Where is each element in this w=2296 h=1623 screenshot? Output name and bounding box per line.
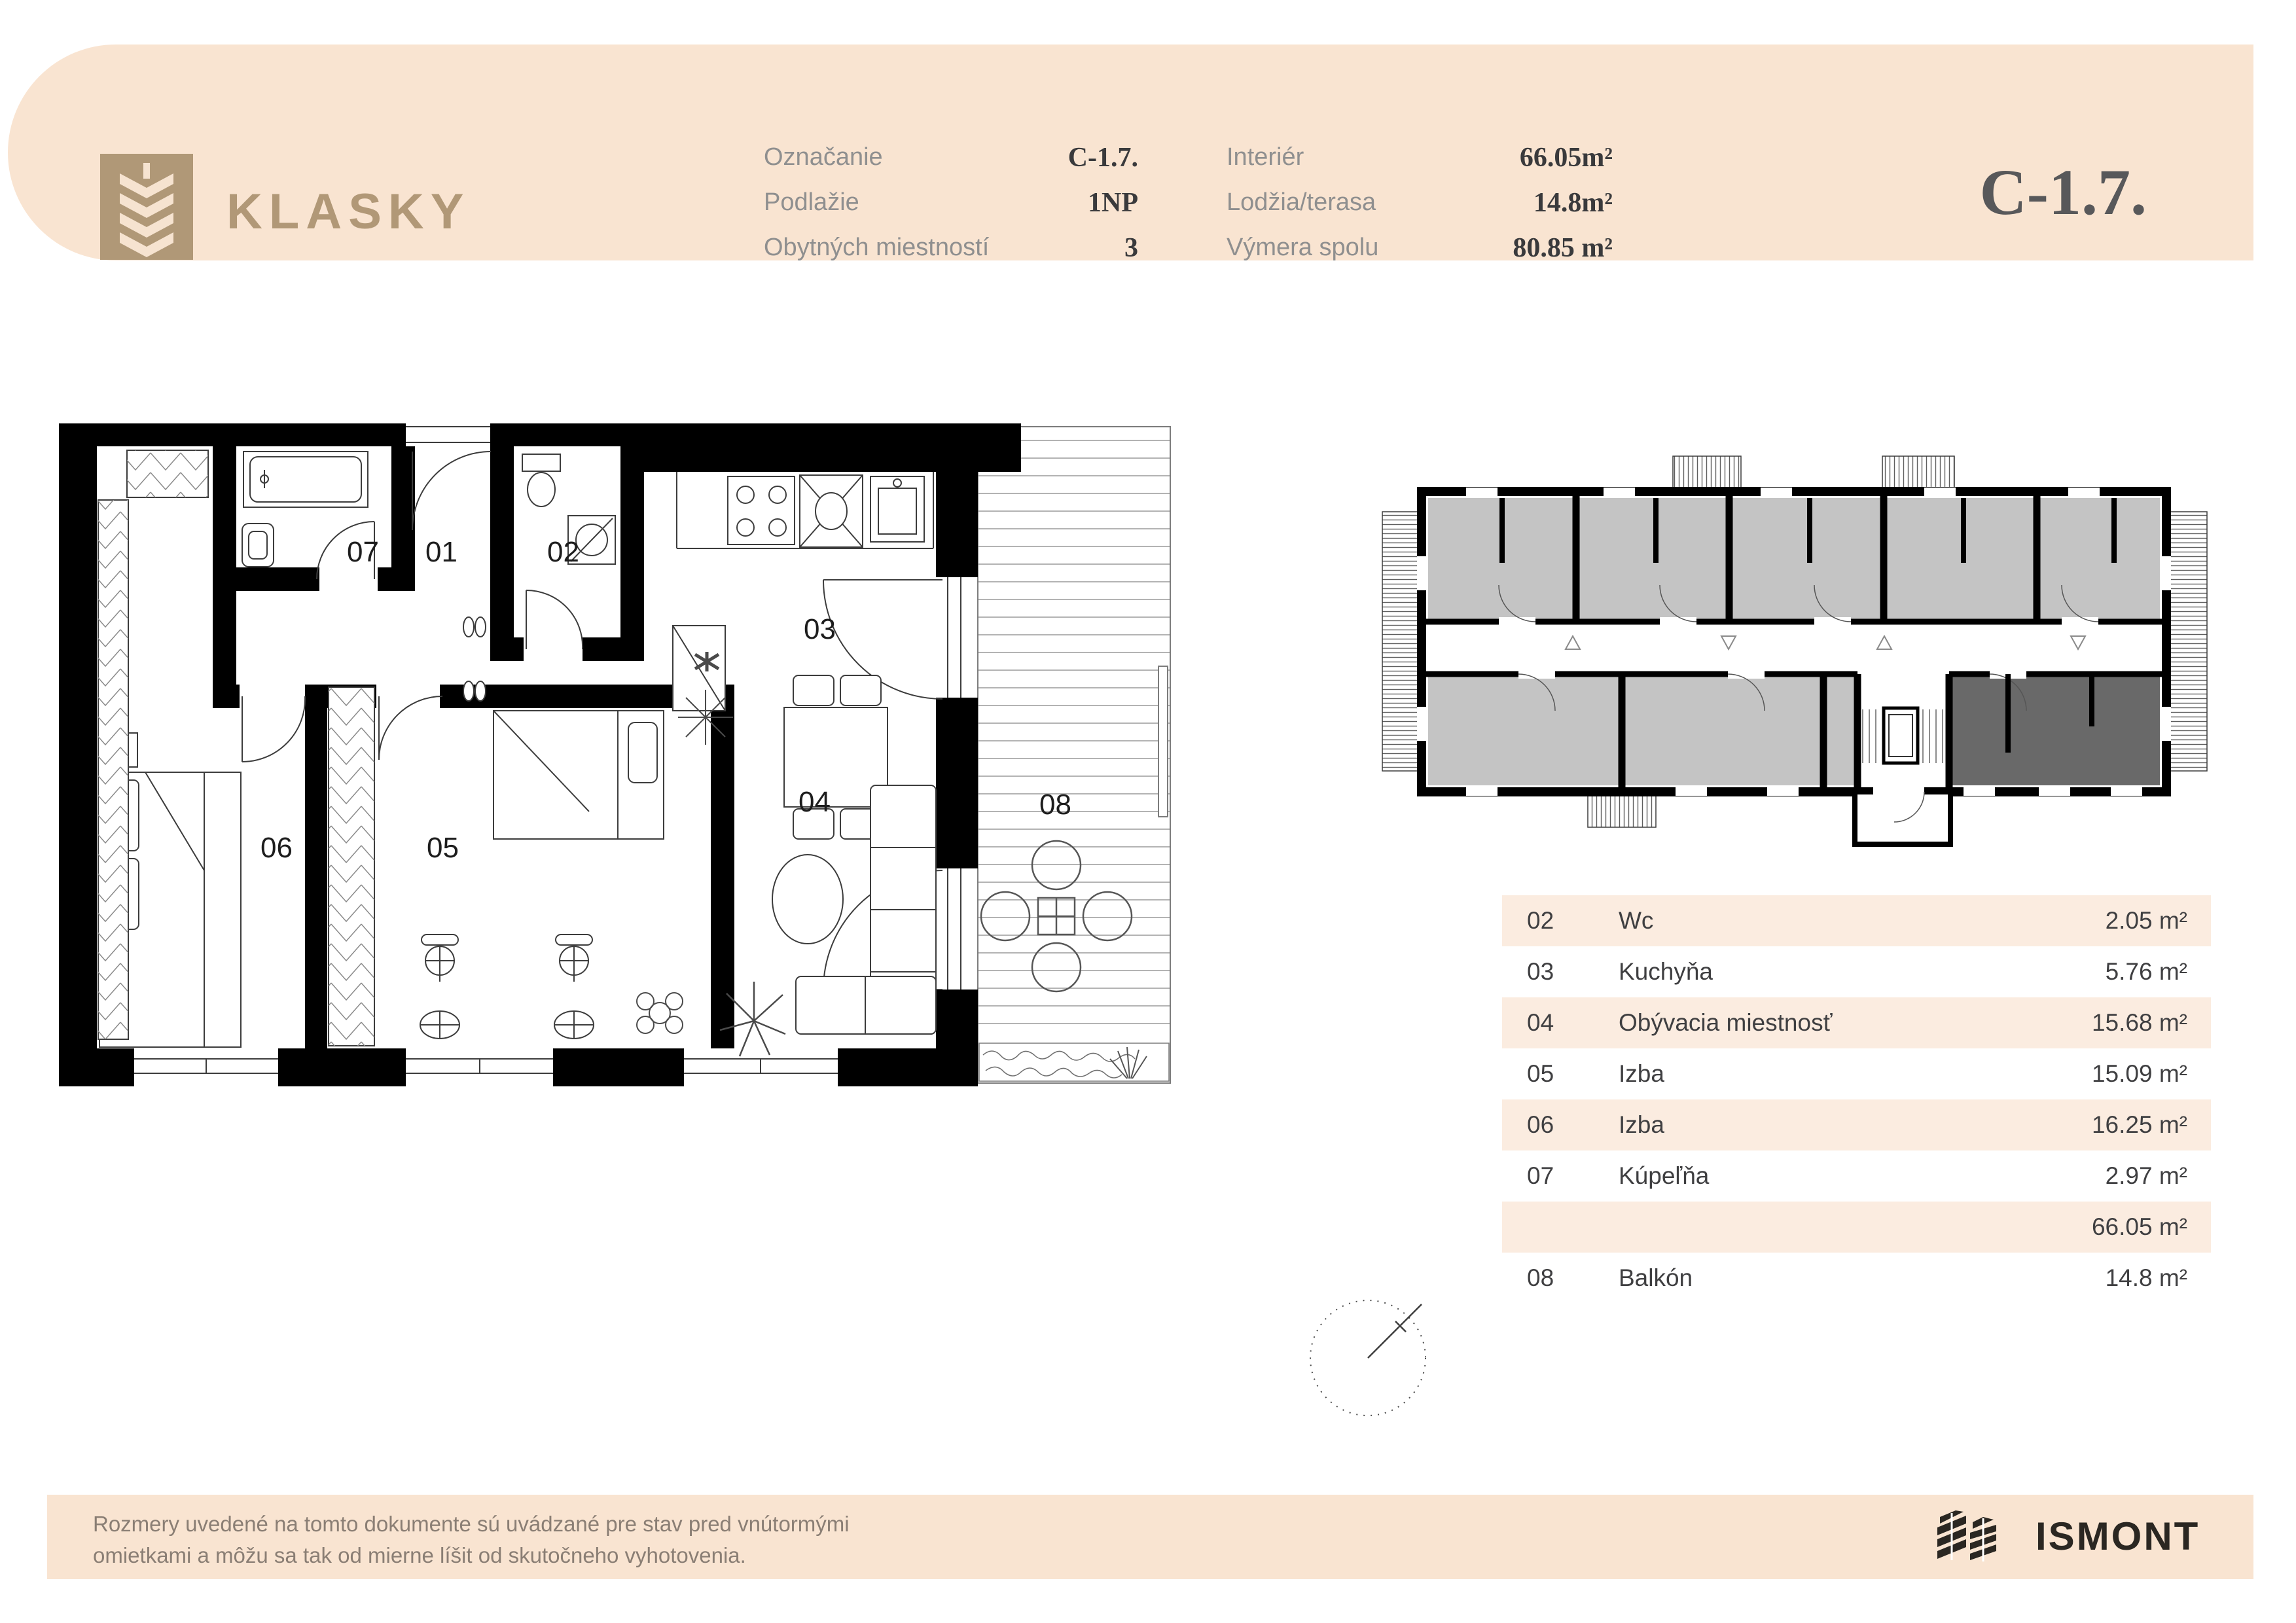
field-value: 14.8m²	[1378, 187, 1613, 219]
field-label: Výmera spolu	[1227, 234, 1378, 262]
apartment-floor-plan: 07 01 02 03 06 05 04 08	[56, 419, 1175, 1090]
header-info-right: Interiér 66.05m² Lodžia/terasa 14.8m² Vý…	[1227, 135, 1613, 270]
room-table-row: 04Obývacia miestnosť15.68 m²	[1502, 997, 2211, 1048]
balcony-deck	[978, 427, 1170, 1083]
room-area: 16.25 m²	[2092, 1111, 2211, 1139]
room-name: Wc	[1619, 907, 2106, 935]
room-table-row: 05Izba15.09 m²	[1502, 1048, 2211, 1099]
field-label: Lodžia/terasa	[1227, 188, 1378, 217]
north-compass	[1299, 1289, 1437, 1427]
field-label: Podlažie	[764, 188, 989, 217]
room-name: Obývacia miestnosť	[1619, 1009, 2092, 1037]
room-table-row: 03Kuchyňa5.76 m²	[1502, 946, 2211, 997]
room-label-03: 03	[804, 613, 836, 645]
room-area: 5.76 m²	[2106, 958, 2211, 986]
room-table-row: 08Balkón14.8 m²	[1502, 1253, 2211, 1304]
field-value: C-1.7.	[989, 142, 1138, 173]
room-number: 05	[1502, 1060, 1619, 1088]
room-area: 15.68 m²	[2092, 1009, 2211, 1037]
floorplan-sheet: KLASKY Označanie C-1.7. Podlažie 1NP Oby…	[0, 0, 2296, 1623]
room-number: 08	[1502, 1264, 1619, 1292]
room-area: 2.05 m²	[2106, 907, 2211, 935]
field-label: Označanie	[764, 143, 989, 171]
room-name: Balkón	[1619, 1264, 2106, 1292]
field-value: 1NP	[989, 187, 1138, 219]
room-label-07: 07	[347, 536, 379, 568]
room-number: 04	[1502, 1009, 1619, 1037]
brand-name: KLASKY	[226, 183, 470, 240]
room-label-05: 05	[427, 832, 459, 864]
room-table-row: 06Izba16.25 m²	[1502, 1099, 2211, 1150]
room-area: 15.09 m²	[2092, 1060, 2211, 1088]
plant-corridor	[678, 690, 733, 745]
ismont-logo: ISMONT	[1936, 1510, 2200, 1561]
footer-disclaimer: Rozmery uvedené na tomto dokumente sú uv…	[93, 1508, 850, 1571]
unit-code-title: C-1.7.	[1979, 154, 2147, 230]
room-area: 66.05 m²	[2092, 1213, 2211, 1241]
klasky-wheat-logo-icon	[100, 154, 193, 260]
room-label-02: 02	[547, 536, 579, 568]
room-name: Kuchyňa	[1619, 958, 2106, 986]
room-name: Kúpeľňa	[1619, 1162, 2106, 1190]
room-area: 2.97 m²	[2106, 1162, 2211, 1190]
room-label-01: 01	[425, 536, 457, 568]
field-value: 3	[989, 232, 1138, 264]
room-table-row: 07Kúpeľňa2.97 m²	[1502, 1150, 2211, 1202]
footer-line-2: omietkami a môžu sa tak od mierne líšit …	[93, 1540, 850, 1571]
plant-05	[637, 993, 683, 1033]
room-label-08: 08	[1039, 789, 1071, 821]
field-label: Obytných miestností	[764, 234, 989, 262]
room-number: 02	[1502, 907, 1619, 935]
room-table-row: 02Wc2.05 m²	[1502, 895, 2211, 946]
field-value: 80.85 m²	[1378, 232, 1613, 264]
ismont-name: ISMONT	[2036, 1514, 2200, 1559]
room-label-06: 06	[260, 832, 293, 864]
room-number: 06	[1502, 1111, 1619, 1139]
building-key-plan	[1378, 419, 2215, 854]
room-name: Izba	[1619, 1060, 2092, 1088]
field-value: 66.05m²	[1378, 142, 1613, 173]
room-table-row: 66.05 m²	[1502, 1202, 2211, 1253]
ismont-building-icon	[1936, 1510, 2022, 1561]
room-name: Izba	[1619, 1111, 2092, 1139]
room-area: 14.8 m²	[2106, 1264, 2211, 1292]
footer-line-1: Rozmery uvedené na tomto dokumente sú uv…	[93, 1508, 850, 1540]
room-number: 03	[1502, 958, 1619, 986]
room-label-04: 04	[798, 786, 831, 818]
room-table: 02Wc2.05 m²03Kuchyňa5.76 m²04Obývacia mi…	[1502, 895, 2211, 1304]
field-label: Interiér	[1227, 143, 1378, 171]
header-bar: KLASKY Označanie C-1.7. Podlažie 1NP Oby…	[8, 45, 2253, 260]
header-info-left: Označanie C-1.7. Podlažie 1NP Obytných m…	[764, 135, 1138, 270]
room-number: 07	[1502, 1162, 1619, 1190]
